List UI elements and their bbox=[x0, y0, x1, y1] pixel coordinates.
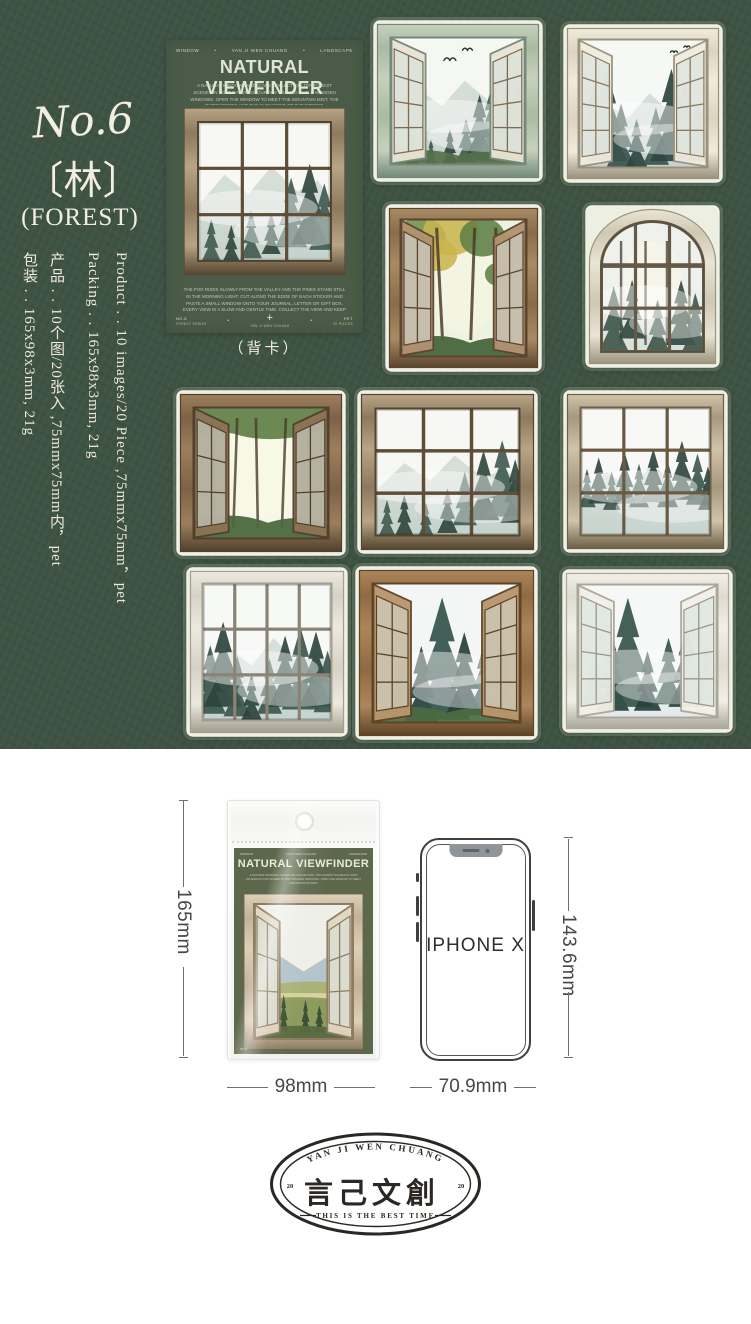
dimension-line bbox=[334, 1087, 375, 1088]
phone-camera-dot bbox=[485, 849, 489, 853]
footer-right-sub: 20 PIECES bbox=[333, 322, 353, 326]
phone-volume-down-button bbox=[416, 922, 419, 942]
series-name: (FOREST) bbox=[0, 204, 160, 232]
package-height-line bbox=[183, 801, 184, 887]
back-card-header: WINDOW • YAN JI WEN CHUANG • LANDSCAPE bbox=[176, 48, 353, 53]
back-card-header-left: WINDOW bbox=[176, 48, 199, 53]
window-sticker-w7 bbox=[563, 390, 728, 553]
back-card-footer-left: NO.6 FOREST SERIES bbox=[176, 316, 207, 326]
separator-dot: • bbox=[310, 318, 312, 324]
iphone-x-outline: IPHONE X bbox=[420, 838, 531, 1061]
package-window-illustration bbox=[244, 894, 363, 1049]
back-card-header-center: YAN JI WEN CHUANG bbox=[232, 48, 288, 53]
separator-dot: • bbox=[303, 48, 305, 53]
package-bag-photo: WINDOW YAN JI WEN CHUANG LANDSCAPE NATUR… bbox=[227, 800, 380, 1060]
package-width-dimension: 98mm bbox=[225, 1076, 377, 1098]
package-front-card: WINDOW YAN JI WEN CHUANG LANDSCAPE NATUR… bbox=[234, 848, 373, 1054]
stamp-year-left: 20 bbox=[287, 1183, 294, 1190]
back-card-caption: （背卡） bbox=[166, 337, 363, 358]
window-sticker-w10 bbox=[562, 569, 733, 733]
window-sticker-w6 bbox=[357, 390, 538, 554]
dimension-line bbox=[227, 1087, 268, 1088]
package-height-label: 165mm bbox=[172, 889, 194, 955]
series-number: No.6 bbox=[17, 93, 149, 149]
package-header-left: WINDOW bbox=[240, 852, 253, 856]
series-kanji: 〔林〕 bbox=[10, 150, 156, 206]
product-spec-vertical-text: 包装 . . 165x98x3mm, 21g 产品 . . 10个图/20张入 … bbox=[20, 252, 129, 652]
phone-height-line bbox=[568, 992, 569, 1056]
package-height-line bbox=[183, 967, 184, 1056]
back-card-footer-center: + YAN JI WEN CHUANG bbox=[250, 314, 290, 328]
dimension-tick bbox=[564, 1057, 573, 1058]
footer-right-top: PET bbox=[333, 316, 353, 321]
stamp-tagline: THIS IS THE BEST TIME bbox=[316, 1212, 435, 1220]
window-sticker-w2 bbox=[563, 24, 723, 183]
package-card-microtext: A NATURAL WINDOW LANDSCAPE COLLECTION. T… bbox=[244, 873, 363, 890]
phone-power-button bbox=[532, 900, 535, 931]
spec-product-cn: 产品 . . 10个图/20张入 ,75mmx75mm内，pet bbox=[47, 252, 64, 567]
back-card-footer-right: PET 20 PIECES bbox=[333, 316, 353, 326]
plus-icon: + bbox=[267, 314, 274, 323]
back-card-header-right: LANDSCAPE bbox=[320, 48, 353, 53]
dimension-line bbox=[514, 1087, 536, 1088]
back-card-intro-microtext: A NATURAL WINDOW LANDSCAPE COLLECTION. T… bbox=[188, 83, 341, 105]
spec-product-en: Product . . 10 images/20 Piece ,75mmx75m… bbox=[112, 252, 129, 604]
window-sticker-w3 bbox=[385, 204, 542, 372]
window-sticker-w4 bbox=[585, 205, 720, 368]
package-card-header: WINDOW YAN JI WEN CHUANG LANDSCAPE bbox=[240, 852, 367, 856]
product-listing-image: No.6 〔林〕 (FOREST) 包装 . . 165x98x3mm, 21g… bbox=[0, 0, 751, 1324]
back-card: WINDOW • YAN JI WEN CHUANG • LANDSCAPE N… bbox=[166, 40, 363, 333]
back-card-footer: NO.6 FOREST SERIES • + YAN JI WEN CHUANG… bbox=[176, 314, 353, 328]
phone-width-dimension: 70.9mm bbox=[405, 1076, 541, 1098]
package-width-label: 98mm bbox=[275, 1076, 328, 1098]
stamp-year-right: 20 bbox=[458, 1183, 465, 1190]
dimension-tick bbox=[564, 837, 573, 838]
window-sticker-w5 bbox=[176, 390, 346, 556]
package-header-center: YAN JI WEN CHUANG bbox=[286, 852, 317, 856]
back-card-description-microtext: THE FOG RISES SLOWLY FROM THE VALLEY AND… bbox=[182, 287, 347, 311]
stamp-main-text: 言己文創 bbox=[304, 1176, 440, 1210]
dimension-tick bbox=[179, 1057, 188, 1058]
phone-height-line bbox=[568, 839, 569, 911]
green-showcase-panel: No.6 〔林〕 (FOREST) 包装 . . 165x98x3mm, 21g… bbox=[0, 0, 751, 749]
phone-volume-up-button bbox=[416, 896, 419, 916]
phone-height-label: 143.6mm bbox=[557, 914, 579, 997]
tear-perforation bbox=[232, 841, 375, 843]
package-card-footnote: NO.6 bbox=[240, 1047, 247, 1051]
stamp-arc-text: YAN JI WEN CHUANG bbox=[305, 1141, 446, 1164]
phone-speaker bbox=[462, 849, 479, 852]
hang-hole bbox=[295, 812, 314, 831]
svg-text:YAN JI WEN CHUANG: YAN JI WEN CHUANG bbox=[305, 1141, 446, 1164]
window-sticker-w9 bbox=[355, 566, 538, 740]
phone-width-label: 70.9mm bbox=[439, 1076, 508, 1098]
spec-packing-cn: 包装 . . 165x98x3mm, 21g bbox=[20, 252, 37, 436]
spec-packing-en: Packing . . 165x98x3mm, 21g bbox=[84, 252, 101, 459]
brand-stamp-svg: YAN JI WEN CHUANG 言己文創 20 20 THIS IS THE… bbox=[266, 1130, 485, 1238]
phone-notch bbox=[449, 844, 502, 857]
window-sticker-w8 bbox=[186, 567, 348, 737]
footer-left-top: NO.6 bbox=[176, 316, 207, 321]
footer-left-sub: FOREST SERIES bbox=[176, 322, 207, 326]
size-guide-panel: 165mm WINDOW YAN JI WEN CHUANG LANDSCAPE… bbox=[0, 749, 751, 1324]
back-card-window-illustration bbox=[184, 108, 345, 275]
window-sticker-w1 bbox=[373, 20, 543, 182]
phone-mute-switch bbox=[416, 873, 419, 882]
dimension-line bbox=[410, 1087, 432, 1088]
separator-dot: • bbox=[214, 48, 216, 53]
package-card-title: NATURAL VIEWFINDER bbox=[234, 858, 373, 870]
package-header-right: LANDSCAPE bbox=[349, 852, 367, 856]
brand-stamp: YAN JI WEN CHUANG 言己文創 20 20 THIS IS THE… bbox=[266, 1130, 485, 1238]
footer-center-sub: YAN JI WEN CHUANG bbox=[250, 324, 290, 328]
phone-label: IPHONE X bbox=[422, 935, 529, 957]
separator-dot: • bbox=[227, 318, 229, 324]
